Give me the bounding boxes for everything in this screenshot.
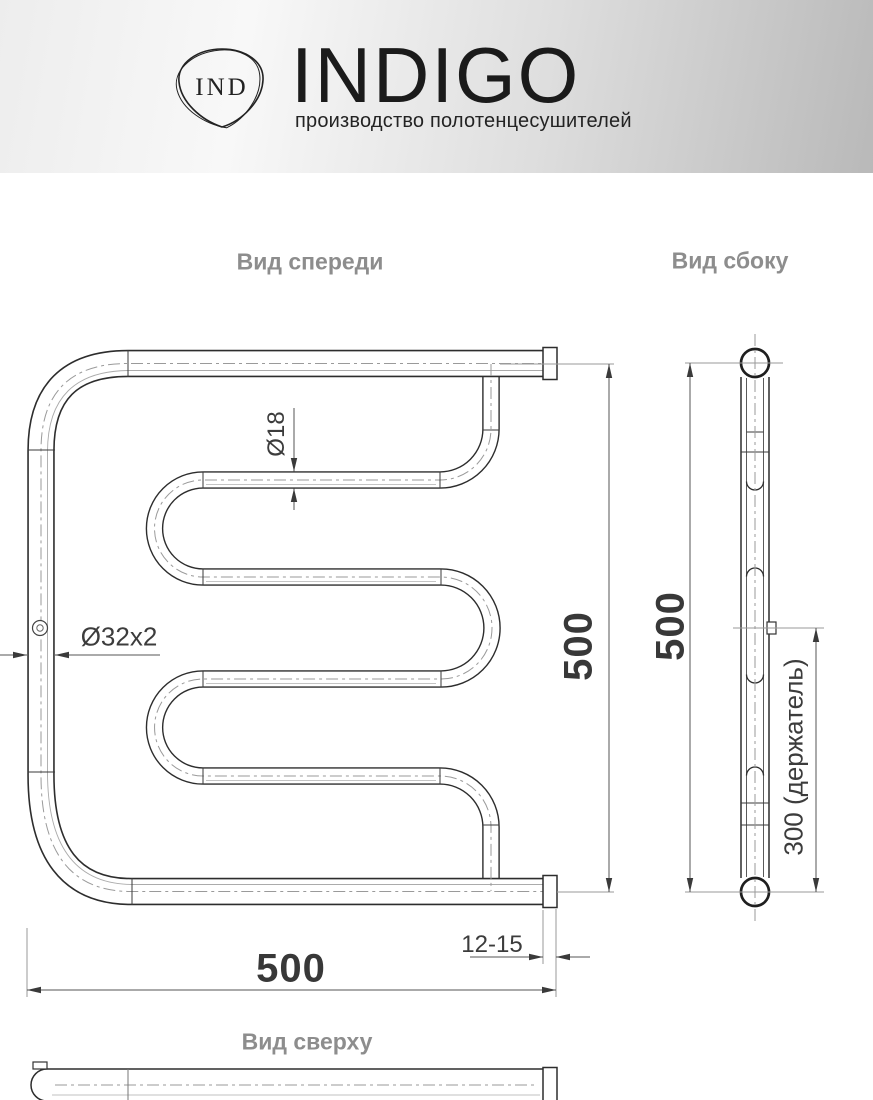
top-view-cap [543, 1068, 557, 1100]
brand-header: IND INDIGO производство полотенцесушител… [0, 0, 873, 173]
coil-pipe [155, 364, 493, 891]
page: IND INDIGO производство полотенцесушител… [0, 0, 873, 1100]
brand-tagline: производство полотенцесушителей [295, 110, 632, 133]
wall-clearance-dimension: 12-15 [461, 931, 522, 959]
side-view-label: Вид сбоку [672, 248, 789, 275]
brand-name: INDIGO [291, 36, 580, 114]
front-width-dimension: 500 [256, 947, 326, 992]
top-view-label: Вид сверху [242, 1029, 373, 1056]
holder-spacing-dimension: 300 (держатель) [779, 658, 810, 855]
logo-monogram: IND [172, 46, 272, 130]
coil-diameter-dimension: Ø18 [263, 411, 291, 456]
front-height-dimension: 500 [557, 611, 602, 681]
side-height-dimension: 500 [649, 591, 694, 661]
top-view-vent [33, 1062, 47, 1069]
air-vent-icon [33, 621, 48, 636]
front-view-label: Вид спереди [237, 249, 384, 276]
top-view-drawing [31, 1062, 557, 1100]
wall-caps [543, 348, 557, 908]
main-diameter-dimension: Ø32x2 [81, 622, 158, 653]
